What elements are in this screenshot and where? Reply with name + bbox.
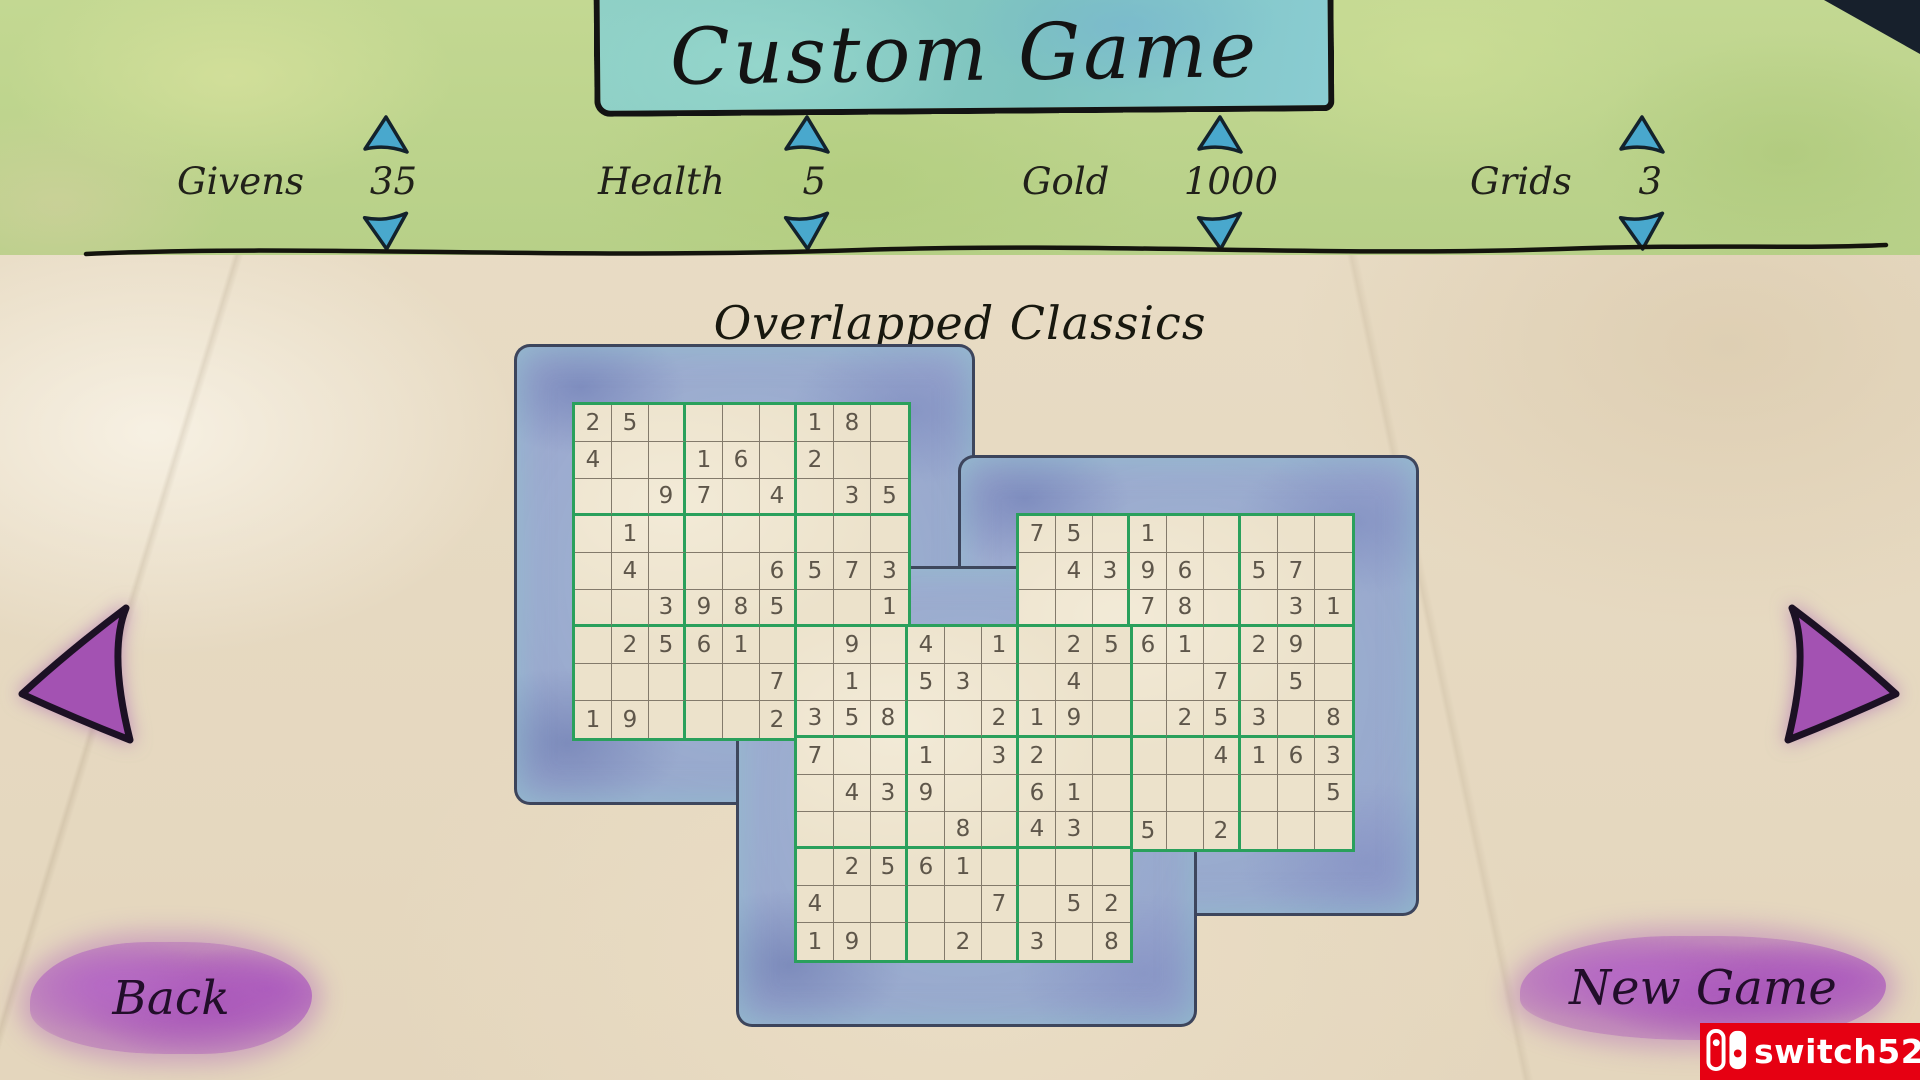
sudoku-cell: 6 (1019, 775, 1056, 812)
sudoku-cell (797, 812, 834, 849)
sudoku-cell (908, 701, 945, 738)
sudoku-cell (686, 664, 723, 701)
sudoku-cell: 2 (612, 627, 649, 664)
sudoku-cell (908, 923, 945, 960)
sudoku-cell: 7 (686, 479, 723, 516)
sudoku-cell: 4 (1056, 553, 1093, 590)
sudoku-cell: 9 (1278, 627, 1315, 664)
sudoku-cell (1167, 812, 1204, 849)
sudoku-cell (760, 405, 797, 442)
sudoku-cell: 4 (1019, 812, 1056, 849)
sudoku-cell (1204, 627, 1241, 664)
sudoku-cell (1019, 849, 1056, 886)
sudoku-cell: 9 (908, 775, 945, 812)
previous-layout-button[interactable] (8, 600, 142, 752)
sudoku-cell (649, 516, 686, 553)
sudoku-cell (1093, 775, 1130, 812)
sudoku-cell (1130, 738, 1167, 775)
sudoku-cell (1093, 738, 1130, 775)
sudoku-cell (723, 405, 760, 442)
sudoku-cell (1278, 701, 1315, 738)
sudoku-cell: 3 (797, 701, 834, 738)
sudoku-cell: 8 (871, 701, 908, 738)
sudoku-cell (1167, 738, 1204, 775)
sudoku-cell: 4 (797, 886, 834, 923)
sudoku-cell (982, 849, 1019, 886)
sudoku-cell: 1 (797, 405, 834, 442)
sudoku-cell: 1 (797, 923, 834, 960)
sudoku-cell: 5 (1241, 553, 1278, 590)
sudoku-cell: 1 (1241, 738, 1278, 775)
sudoku-cell: 4 (1204, 738, 1241, 775)
sudoku-cell (649, 442, 686, 479)
sudoku-cell: 1 (1130, 516, 1167, 553)
sudoku-cell: 4 (612, 553, 649, 590)
sudoku-cell (834, 812, 871, 849)
sudoku-cell (760, 516, 797, 553)
sudoku-cell: 1 (871, 590, 908, 627)
sudoku-cell: 2 (834, 849, 871, 886)
sudoku-cell: 2 (1056, 627, 1093, 664)
sudoku-cell: 6 (760, 553, 797, 590)
sudoku-cell (723, 664, 760, 701)
sudoku-cell: 9 (1130, 553, 1167, 590)
sudoku-cell: 3 (1093, 553, 1130, 590)
sudoku-cell: 8 (723, 590, 760, 627)
sudoku-cell (575, 479, 612, 516)
sudoku-cell: 5 (1130, 812, 1167, 849)
sudoku-cell: 3 (871, 775, 908, 812)
sudoku-cell: 7 (1278, 553, 1315, 590)
sudoku-cell (686, 553, 723, 590)
sudoku-cell: 1 (908, 738, 945, 775)
sudoku-cell (1315, 627, 1352, 664)
sudoku-cell: 5 (1056, 516, 1093, 553)
sudoku-cell (871, 442, 908, 479)
sudoku-cell: 5 (871, 849, 908, 886)
sudoku-cell: 7 (834, 553, 871, 590)
sudoku-cell (982, 775, 1019, 812)
sudoku-cell (649, 553, 686, 590)
sudoku-cell: 3 (1019, 923, 1056, 960)
sudoku-cell: 9 (612, 701, 649, 738)
sudoku-cell: 8 (945, 812, 982, 849)
sudoku-cell: 4 (575, 442, 612, 479)
watermark-text: switch520 (1754, 1032, 1920, 1071)
sudoku-cell: 2 (945, 923, 982, 960)
sudoku-cell (1241, 590, 1278, 627)
sudoku-cell (871, 738, 908, 775)
sudoku-cell: 1 (834, 664, 871, 701)
sudoku-cell: 3 (649, 590, 686, 627)
sudoku-cell (1093, 812, 1130, 849)
sudoku-cell: 3 (1241, 701, 1278, 738)
watermark-banner: switch520 (1700, 1023, 1920, 1080)
sudoku-cell (686, 405, 723, 442)
sudoku-cell (612, 442, 649, 479)
sudoku-cell (945, 775, 982, 812)
sudoku-cell (834, 886, 871, 923)
sudoku-cell: 2 (982, 701, 1019, 738)
sudoku-cell (760, 442, 797, 479)
sudoku-cell: 1 (982, 627, 1019, 664)
sudoku-cell: 4 (1056, 664, 1093, 701)
sudoku-cell (982, 664, 1019, 701)
sudoku-cell (1019, 590, 1056, 627)
sudoku-cell (1093, 516, 1130, 553)
sudoku-cell: 1 (612, 516, 649, 553)
sudoku-cell: 8 (1167, 590, 1204, 627)
sudoku-cell (1167, 664, 1204, 701)
sudoku-cell (1167, 516, 1204, 553)
sudoku-cell: 9 (1056, 701, 1093, 738)
sudoku-cell (1056, 590, 1093, 627)
sudoku-cell (1241, 775, 1278, 812)
sudoku-cell (1204, 590, 1241, 627)
sudoku-cell (575, 590, 612, 627)
sudoku-cell (797, 664, 834, 701)
sudoku-cell: 1 (1167, 627, 1204, 664)
sudoku-cell: 9 (834, 923, 871, 960)
sudoku-cell (797, 775, 834, 812)
sudoku-cell: 1 (1019, 701, 1056, 738)
sudoku-cell (797, 590, 834, 627)
sudoku-cell (612, 664, 649, 701)
sudoku-cell: 3 (1056, 812, 1093, 849)
sudoku-cell (1093, 849, 1130, 886)
sudoku-cell: 5 (649, 627, 686, 664)
sudoku-cell: 7 (1204, 664, 1241, 701)
sudoku-cell: 2 (797, 442, 834, 479)
sudoku-cell (1167, 775, 1204, 812)
sudoku-cell: 5 (797, 553, 834, 590)
sudoku-cell: 7 (1019, 516, 1056, 553)
sudoku-cell: 7 (982, 886, 1019, 923)
sudoku-cell: 2 (1019, 738, 1056, 775)
sudoku-cell: 8 (1315, 701, 1352, 738)
sudoku-cell: 4 (760, 479, 797, 516)
sudoku-cell: 1 (1315, 590, 1352, 627)
sudoku-cell: 6 (1167, 553, 1204, 590)
sudoku-cell (797, 479, 834, 516)
sudoku-cell (723, 553, 760, 590)
sudoku-cell (686, 516, 723, 553)
sudoku-cell (723, 701, 760, 738)
sudoku-cell: 5 (1093, 627, 1130, 664)
sudoku-cell (834, 516, 871, 553)
sudoku-cell: 3 (945, 664, 982, 701)
sudoku-cell: 2 (1241, 627, 1278, 664)
sudoku-cell: 6 (686, 627, 723, 664)
sudoku-cell: 4 (834, 775, 871, 812)
sudoku-cell (945, 627, 982, 664)
sudoku-cell: 1 (1056, 775, 1093, 812)
sudoku-cell: 6 (908, 849, 945, 886)
sudoku-cell (797, 849, 834, 886)
sudoku-cell (871, 627, 908, 664)
sudoku-grid-bottom-middle: 9412515343582197132439618432561475219238 (794, 624, 1133, 963)
sudoku-cell: 8 (834, 405, 871, 442)
sudoku-cell (1241, 812, 1278, 849)
arrow-right-icon (1776, 600, 1910, 752)
back-button-label: Back (112, 971, 229, 1026)
new-game-button-label: New Game (1569, 960, 1837, 1016)
sudoku-cell (575, 553, 612, 590)
sudoku-cell (686, 701, 723, 738)
sudoku-cell (871, 405, 908, 442)
sudoku-cell (1130, 701, 1167, 738)
sudoku-cell: 6 (1278, 738, 1315, 775)
sudoku-cell: 5 (1315, 775, 1352, 812)
sudoku-cell (1241, 664, 1278, 701)
sudoku-cell: 1 (723, 627, 760, 664)
sudoku-cell (1056, 738, 1093, 775)
sudoku-cell: 1 (945, 849, 982, 886)
sudoku-cell (945, 701, 982, 738)
sudoku-cell (1278, 812, 1315, 849)
sudoku-cell (723, 479, 760, 516)
sudoku-cell (1093, 590, 1130, 627)
sudoku-cell (1019, 664, 1056, 701)
sudoku-cell: 5 (1278, 664, 1315, 701)
sudoku-cell (1130, 775, 1167, 812)
sudoku-cell: 6 (723, 442, 760, 479)
sudoku-cell (1019, 886, 1056, 923)
sudoku-cell: 2 (1204, 812, 1241, 849)
nintendo-switch-logo-icon (1705, 1026, 1749, 1078)
sudoku-cell (797, 627, 834, 664)
sudoku-cell (797, 516, 834, 553)
sudoku-cell (834, 442, 871, 479)
sudoku-cell (1278, 516, 1315, 553)
sudoku-cell: 5 (908, 664, 945, 701)
sudoku-cell: 7 (760, 664, 797, 701)
sudoku-cell (908, 886, 945, 923)
sudoku-cell: 5 (760, 590, 797, 627)
sudoku-cell (1019, 553, 1056, 590)
sudoku-cell (982, 923, 1019, 960)
sudoku-cell (575, 516, 612, 553)
sudoku-cell: 9 (834, 627, 871, 664)
sudoku-cell (575, 627, 612, 664)
sudoku-cell: 4 (908, 627, 945, 664)
sudoku-cell: 9 (649, 479, 686, 516)
sudoku-cell: 2 (1093, 886, 1130, 923)
sudoku-cell (1093, 701, 1130, 738)
sudoku-cell (871, 886, 908, 923)
sudoku-cell: 9 (686, 590, 723, 627)
sudoku-cell: 5 (1204, 701, 1241, 738)
sudoku-cell: 2 (575, 405, 612, 442)
sudoku-cell: 1 (686, 442, 723, 479)
sudoku-cell (1019, 627, 1056, 664)
sudoku-cell: 3 (1278, 590, 1315, 627)
sudoku-cell (1315, 553, 1352, 590)
sudoku-cell (575, 664, 612, 701)
puzzle-area: 2518416297435146573398512561971192358751… (0, 0, 1920, 1080)
sudoku-cell (1204, 516, 1241, 553)
sudoku-cell (1278, 775, 1315, 812)
sudoku-cell (1204, 775, 1241, 812)
sudoku-cell (1315, 664, 1352, 701)
sudoku-cell (1093, 664, 1130, 701)
sudoku-cell (871, 664, 908, 701)
sudoku-cell (908, 812, 945, 849)
sudoku-cell: 6 (1130, 627, 1167, 664)
sudoku-cell (760, 627, 797, 664)
sudoku-cell: 3 (834, 479, 871, 516)
sudoku-cell: 1 (575, 701, 612, 738)
sudoku-cell: 3 (982, 738, 1019, 775)
sudoku-cell (649, 701, 686, 738)
sudoku-cell: 5 (612, 405, 649, 442)
sudoku-cell (612, 479, 649, 516)
sudoku-cell (723, 516, 760, 553)
next-layout-button[interactable] (1776, 600, 1910, 752)
sudoku-cell (1204, 553, 1241, 590)
custom-game-screen: Custom Game Givens 35 Health 5 Gold 1000… (0, 0, 1920, 1080)
sudoku-cell (982, 812, 1019, 849)
arrow-left-icon (8, 600, 142, 752)
sudoku-cell (871, 923, 908, 960)
sudoku-cell (871, 812, 908, 849)
sudoku-cell (649, 664, 686, 701)
sudoku-cell (1056, 849, 1093, 886)
sudoku-cell (945, 738, 982, 775)
sudoku-cell (612, 590, 649, 627)
back-button[interactable]: Back (30, 942, 312, 1054)
sudoku-cell: 7 (1130, 590, 1167, 627)
sudoku-cell (1241, 516, 1278, 553)
sudoku-cell (1056, 923, 1093, 960)
sudoku-cell (871, 516, 908, 553)
sudoku-cell: 3 (871, 553, 908, 590)
sudoku-cell (834, 738, 871, 775)
sudoku-cell (834, 590, 871, 627)
sudoku-cell (1315, 812, 1352, 849)
sudoku-cell: 5 (1056, 886, 1093, 923)
sudoku-cell: 2 (1167, 701, 1204, 738)
sudoku-cell: 3 (1315, 738, 1352, 775)
sudoku-cell: 7 (797, 738, 834, 775)
sudoku-cell: 8 (1093, 923, 1130, 960)
sudoku-cell: 5 (871, 479, 908, 516)
sudoku-cell (945, 886, 982, 923)
sudoku-cell: 5 (834, 701, 871, 738)
sudoku-cell: 2 (760, 701, 797, 738)
sudoku-cell (1315, 516, 1352, 553)
sudoku-cell (649, 405, 686, 442)
sudoku-cell (1130, 664, 1167, 701)
